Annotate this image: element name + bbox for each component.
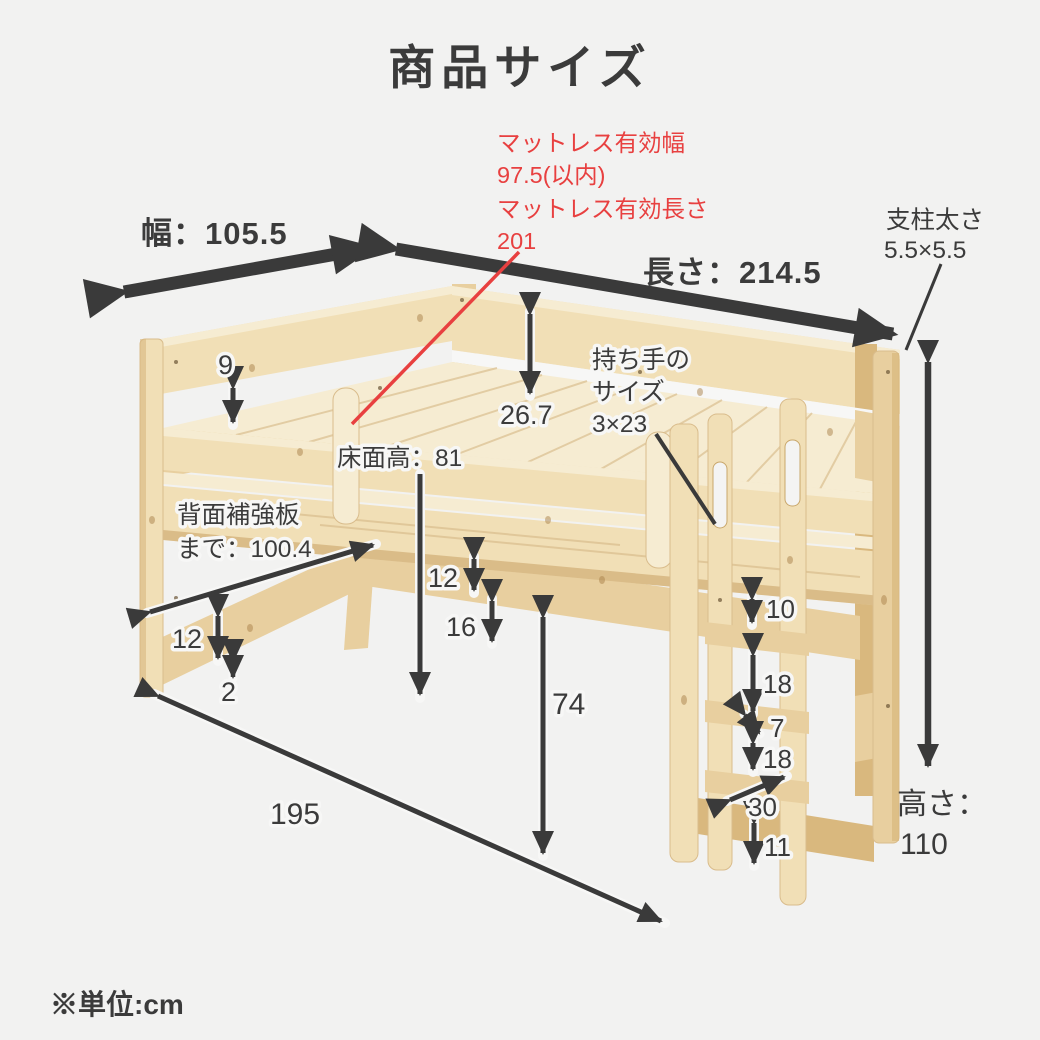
post-size-pointer [906, 264, 941, 350]
height-value: 110 [900, 828, 948, 861]
rung-depth-value: 7 [770, 713, 784, 743]
unit-note: ※単位:cm [50, 988, 184, 1020]
page-title: 商品サイズ [388, 41, 652, 94]
length-label: 長さ：214.5 [643, 255, 822, 290]
mid-rail-value: 12 [428, 563, 458, 593]
product-size-diagram: 商品サイズ マットレス有効幅 97.5(以内) マットレス有効長さ 201 幅：… [0, 0, 1040, 1040]
back-board-value: まで：100.4 [177, 536, 312, 563]
ladder-handle-cutout-left [713, 462, 727, 528]
handle-label-1: 持ち手の [592, 346, 690, 374]
mattress-length-label: マットレス有効長さ [497, 196, 709, 222]
ladder-bottom-value: 11 [764, 832, 791, 862]
width-arrow [124, 248, 370, 292]
ladder-top-gap-value: 10 [766, 594, 795, 624]
inner-length-arrow [154, 694, 665, 923]
left-gap-value: 2 [221, 677, 236, 707]
guard-above-value: 9 [218, 350, 233, 380]
ladder-gap1-value: 18 [763, 669, 792, 699]
mattress-width-label: マットレス有効幅 [497, 130, 685, 156]
ladder-width-value: 30 [748, 792, 777, 822]
mattress-width-value: 97.5(以内) [497, 162, 605, 188]
back-board-label: 背面補強板 [177, 501, 300, 529]
height-label: 高さ： [897, 788, 987, 821]
post-size-value: 5.5×5.5 [884, 237, 966, 264]
back-lower-rail-left [156, 543, 366, 688]
handle-size-value: 3×23 [592, 411, 647, 438]
width-label: 幅：105.5 [141, 216, 288, 251]
inner-length-value: 195 [270, 798, 320, 831]
mattress-length-value: 201 [497, 228, 536, 254]
left-rail-value: 12 [172, 624, 202, 654]
ladder-handle-cutout-right [785, 440, 800, 506]
handle-label-2: サイズ [592, 378, 665, 406]
post-size-label: 支柱太さ [886, 206, 984, 234]
guard-height-value: 26.7 [500, 400, 553, 430]
clearance-value: 74 [552, 688, 585, 721]
rail-clearance-value: 16 [446, 612, 476, 642]
ladder-gap2-value: 18 [763, 744, 792, 774]
deck-height-label: 床面高：81 [337, 444, 462, 472]
